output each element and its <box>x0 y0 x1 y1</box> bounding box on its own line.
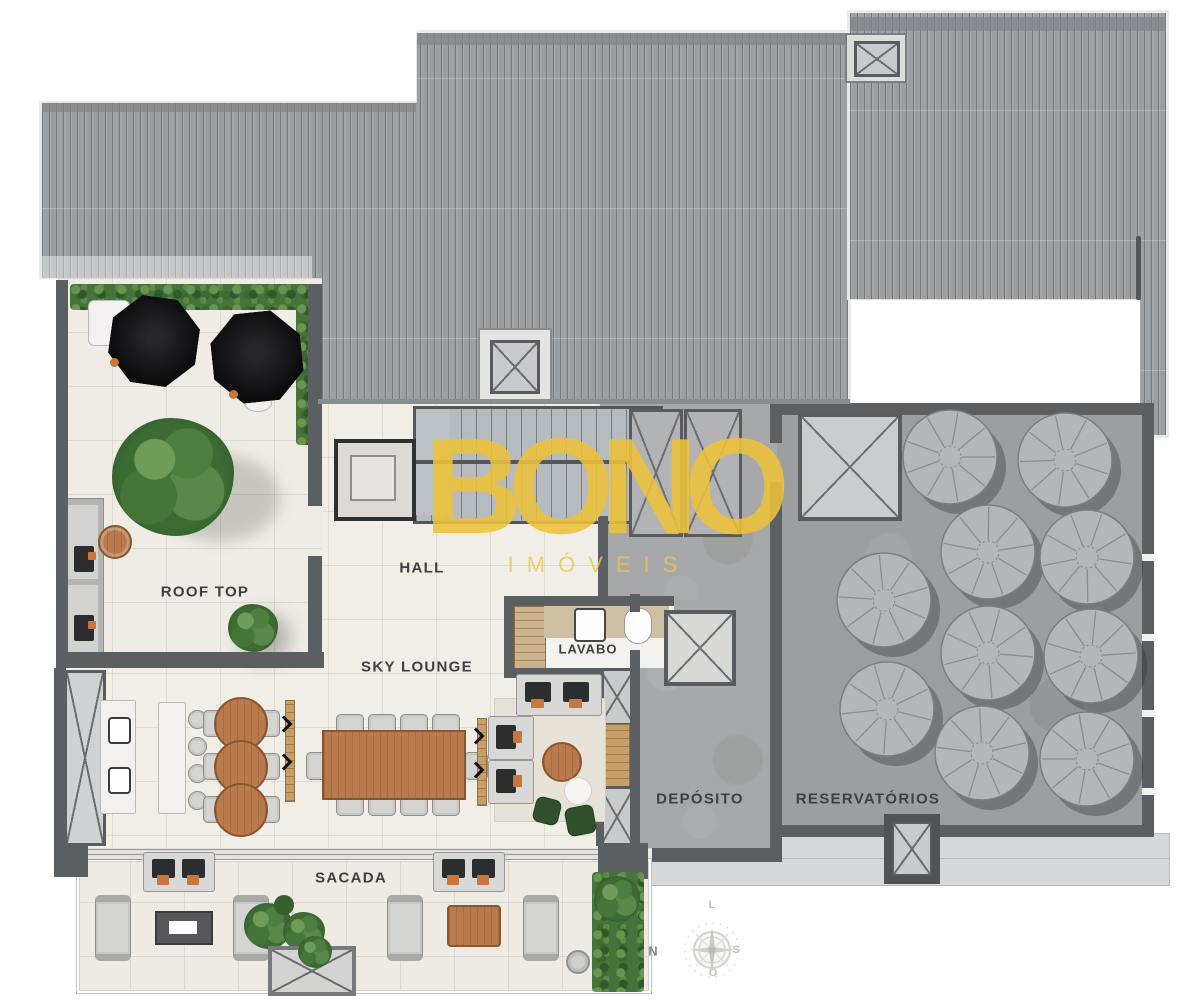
wall <box>630 650 640 860</box>
room-label-sacada: SACADA <box>315 870 387 887</box>
lantern <box>229 390 238 399</box>
compass-east-label: L <box>709 899 716 911</box>
lavabo-vestibule <box>514 606 546 670</box>
room-label-lavabo: LAVABO <box>559 642 618 657</box>
roof-eave <box>42 103 416 112</box>
wall <box>56 652 324 668</box>
palm-plant <box>228 604 278 652</box>
plant <box>274 895 294 915</box>
fire-table <box>155 911 213 945</box>
roof-vent-frame <box>478 328 552 406</box>
vent-hatch-icon <box>892 822 932 876</box>
tree <box>112 418 234 536</box>
roof-overhang-haze <box>42 256 312 278</box>
roof-eave <box>417 33 846 45</box>
roof-eave <box>850 17 1166 31</box>
sink <box>108 767 131 794</box>
vent-hatch-icon <box>490 340 540 394</box>
room-label-deposito: DEPÓSITO <box>656 791 744 808</box>
elevator-car <box>350 455 396 501</box>
palm-plant <box>594 876 640 922</box>
wall <box>598 516 608 606</box>
floor-drain <box>566 950 590 974</box>
sofa <box>143 852 215 892</box>
cushion-accent <box>157 875 169 885</box>
roof-pipe <box>1136 236 1141 300</box>
round-side-table <box>98 525 132 559</box>
room-label-roof-top: ROOF TOP <box>161 584 249 601</box>
cushion-accent <box>513 775 522 787</box>
room-label-sky-lounge: SKY LOUNGE <box>361 659 473 676</box>
cushion-accent <box>477 875 489 885</box>
sink <box>574 608 606 642</box>
compass-rose: N L S O <box>678 916 746 984</box>
plant <box>298 936 332 968</box>
room-label-hall: HALL <box>399 560 444 577</box>
elevator-shaft <box>684 409 742 537</box>
water-tanks <box>775 405 1155 845</box>
cushion-accent <box>88 552 96 560</box>
fire-table-top <box>169 921 197 934</box>
bar-island <box>158 702 186 814</box>
kitchen-counter <box>100 700 136 814</box>
bistro-table <box>214 783 268 837</box>
coffee-table <box>542 742 582 782</box>
roof-vent-frame <box>845 33 907 83</box>
compass-north-label: N <box>648 944 657 959</box>
elevator-shaft <box>664 610 736 686</box>
vent-hatch-icon <box>854 41 900 77</box>
roof-edge-line <box>318 399 850 404</box>
lantern <box>110 358 119 367</box>
armchair <box>488 760 534 804</box>
pouf <box>563 803 597 837</box>
stair-divider <box>416 460 654 464</box>
coffee-table <box>447 905 501 947</box>
wall <box>630 594 640 612</box>
sink <box>108 717 131 744</box>
wall <box>54 668 66 852</box>
rooftop-floor-plan: ROOF TOP HALL SKY LOUNGE LAVABO SACADA D… <box>0 0 1200 1008</box>
cushion-accent <box>569 699 582 708</box>
toilet <box>624 608 652 644</box>
compass-south-label: S <box>732 944 739 956</box>
sofa <box>433 852 505 892</box>
outdoor-chair <box>95 895 131 961</box>
cushion-accent <box>531 699 544 708</box>
sofa <box>516 674 602 716</box>
armchair <box>488 716 534 760</box>
wall <box>56 280 68 668</box>
room-label-reservatorios: RESERVATÓRIOS <box>796 791 940 808</box>
compass-west-label: O <box>709 967 718 979</box>
slat-divider <box>285 700 295 802</box>
stairwell <box>413 406 663 524</box>
wall <box>54 843 88 877</box>
wall <box>504 596 514 678</box>
coffee-table <box>564 777 592 805</box>
elevator <box>334 439 416 521</box>
shaft-frame <box>884 814 940 884</box>
dining-table <box>322 730 466 800</box>
cushion-accent <box>187 875 199 885</box>
cushion-accent <box>513 731 522 743</box>
elevator-shaft <box>629 409 683 537</box>
wall <box>504 596 674 606</box>
cushion-accent <box>88 621 96 629</box>
cushion-accent <box>447 875 459 885</box>
lavabo-room <box>504 596 674 678</box>
outdoor-chair <box>387 895 423 961</box>
outdoor-chair <box>523 895 559 961</box>
wall <box>308 556 322 668</box>
wall <box>308 284 322 506</box>
